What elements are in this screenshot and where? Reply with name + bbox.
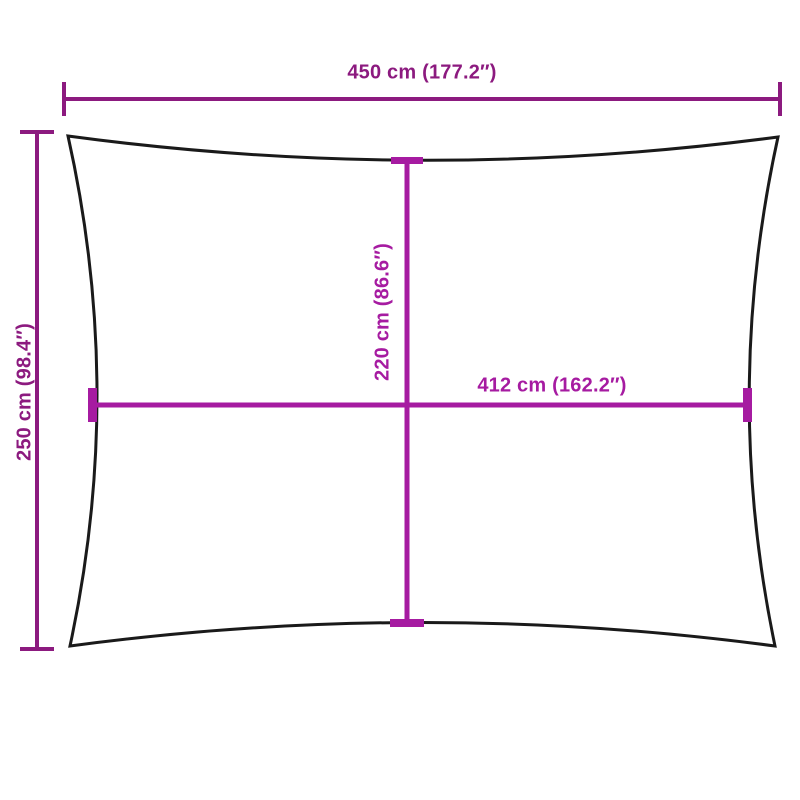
inner-vertical-cap-top (391, 157, 423, 164)
sail-outline (68, 136, 778, 646)
inner-vertical-cap-bottom (390, 619, 424, 627)
left-height-dimension-label: 250 cm (98.4″) (14, 323, 37, 461)
diagram-canvas: 450 cm (177.2″) 250 cm (98.4″) 220 cm (8… (0, 0, 800, 800)
top-width-dimension-label: 450 cm (177.2″) (347, 62, 496, 85)
inner-horizontal-cap-left (88, 388, 97, 422)
inner-width-dimension-label: 412 cm (162.2″) (477, 375, 626, 398)
inner-height-dimension-label: 220 cm (86.6″) (372, 243, 395, 381)
dimension-drawing (0, 0, 800, 800)
inner-horizontal-cap-right (743, 388, 752, 422)
